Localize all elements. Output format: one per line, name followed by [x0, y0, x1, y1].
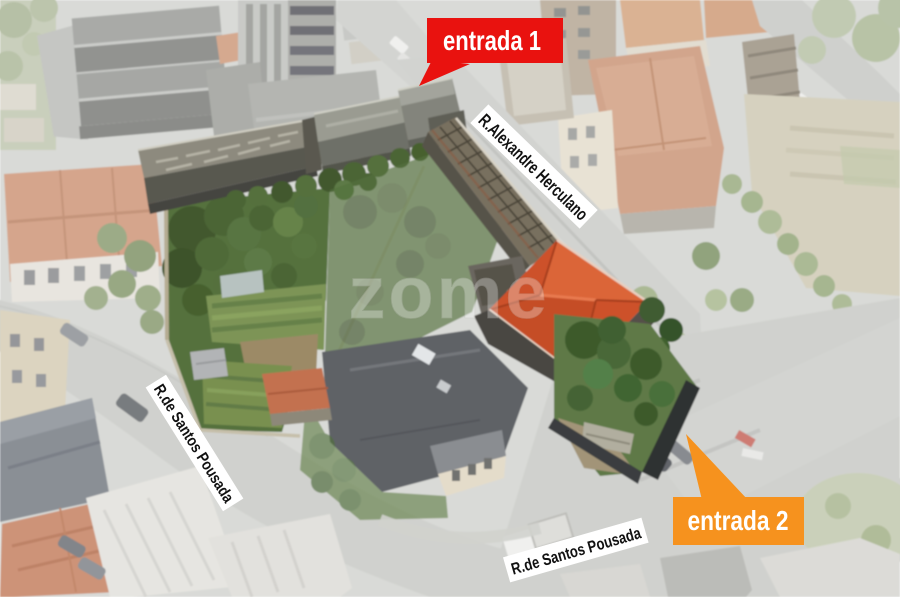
svg-text:entrada 1: entrada 1	[443, 25, 541, 56]
svg-text:entrada 2: entrada 2	[688, 505, 789, 536]
svg-text:zome: zome	[348, 251, 549, 334]
